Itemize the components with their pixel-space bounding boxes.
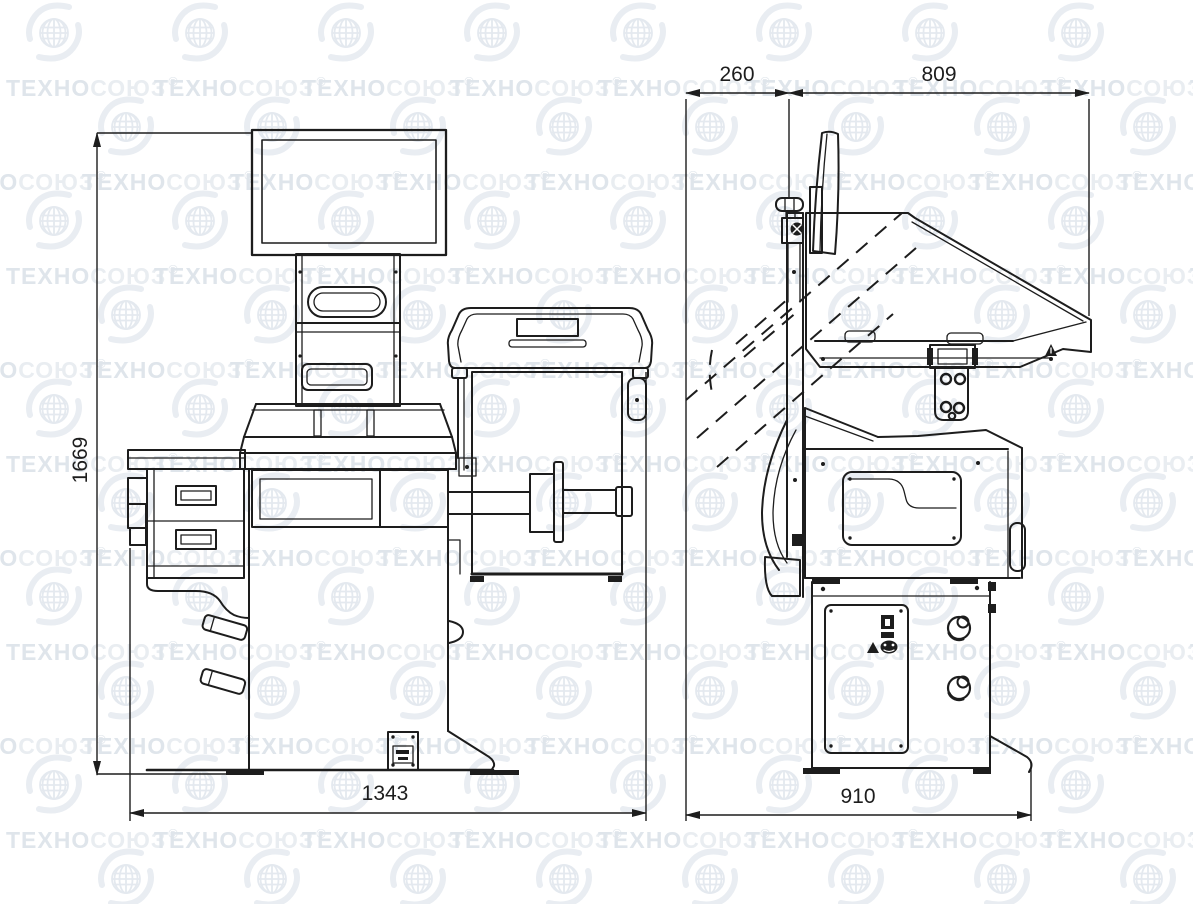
dimension-side-guard-depth: 809 [789,63,1089,93]
dimension-label-910: 910 [840,785,875,808]
front-view [128,130,652,775]
dimensions: 1669 1343 260 [69,63,1089,821]
dimension-side-extensions [686,99,1089,821]
hose-hook [449,621,463,643]
monitor [252,130,446,255]
adjuster-knob-top [948,617,970,640]
cabinet-side-block [128,478,147,504]
machine-body-front [147,469,494,771]
post-foot-wedge [765,557,800,596]
spindle-shaft [448,492,530,514]
warning-triangle-icon [1045,344,1057,356]
column-lower-slot [302,364,372,390]
column-handle-slot [308,287,386,317]
side-access-panel [843,472,961,545]
mounting-flange [554,462,563,542]
spindle-end [616,487,632,516]
warning-labels [867,615,898,654]
warning-triangle-small-icon [867,642,879,653]
power-inlet [388,732,418,770]
cabinet-side-block [130,528,146,545]
dimension-side-base-depth: 910 [686,785,1031,815]
dimension-side-monitor-offset: 260 [686,63,789,93]
weight-tray [240,404,456,469]
spindle-hub [530,474,554,532]
drawer-handle-top [176,486,216,505]
cone-peg-bottom [200,668,246,695]
dimension-label-1669: 1669 [69,437,92,484]
wheel-guard-front [448,308,652,582]
dimension-label-809: 809 [921,63,956,86]
monitor-screen [262,140,436,243]
technical-drawing: ТЕХНОСОЮЗ®ТЕХНОСОЮЗ®ТЕХНОСОЮЗ®ТЕХНОСОЮЗ®… [0,0,1193,904]
guard-display [517,319,578,336]
drawer-cabinet [128,450,245,578]
base-foot-front [448,731,494,771]
dimension-label-260: 260 [719,63,754,86]
dimension-front-height: 1669 [69,133,252,775]
drawer-handle-bottom [176,530,216,549]
hinge-bracket [927,345,978,420]
rear-panel [825,605,908,753]
dimension-label-1343: 1343 [362,782,409,805]
guard-arc-side [762,420,800,596]
drawing-layer: 1669 1343 260 [0,0,1193,904]
base-foot-side [990,736,1032,772]
machine-body-side [805,408,1025,584]
wheel-guard-hood-side [806,213,1091,420]
adjuster-knob-bottom [948,677,970,700]
side-view [686,132,1091,774]
threaded-spindle [563,490,616,513]
guard-top-cover [448,308,652,368]
cabinet-side-block [128,504,146,528]
wing-screw [776,198,803,211]
lower-cabinet-side [803,582,1032,774]
control-column [296,254,400,406]
